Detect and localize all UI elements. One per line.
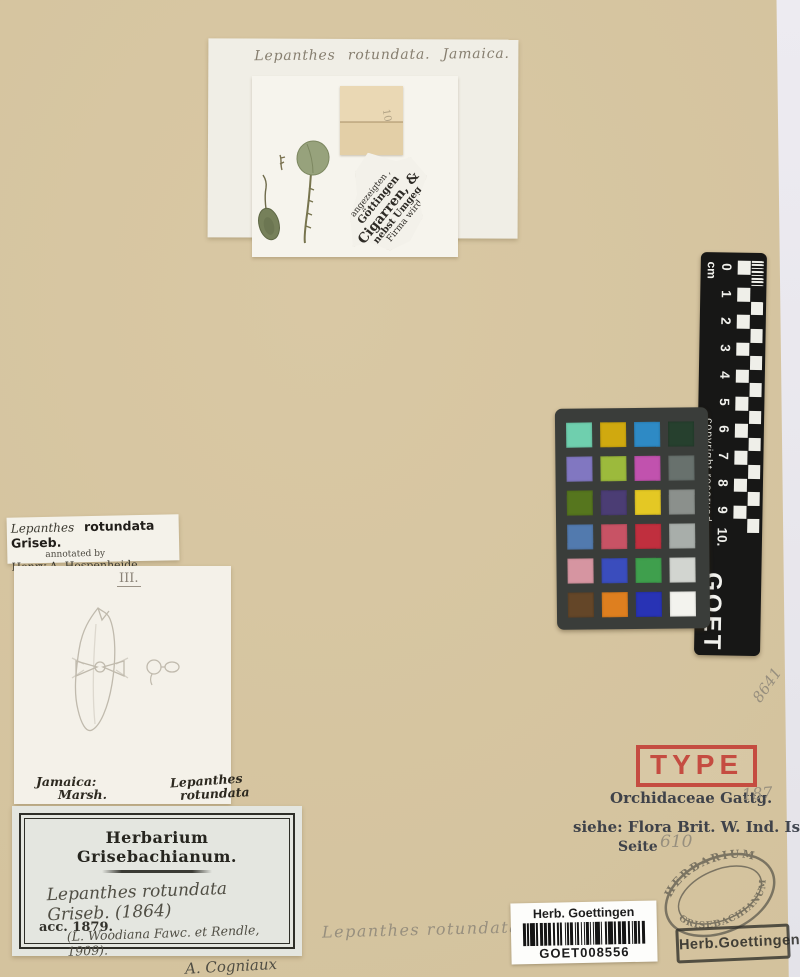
barcode-bar: [523, 923, 526, 946]
barcode-bar: [614, 921, 617, 944]
barcode-bar: [622, 921, 627, 944]
reference-pencil-page: 610: [660, 832, 692, 852]
scale-block: [737, 315, 750, 329]
seed-packet: 10: [340, 86, 403, 155]
color-patch: [669, 557, 695, 582]
barcode-bar: [627, 921, 630, 944]
barcode-bar: [530, 923, 535, 946]
herbarium-label-signature: A. Cogniaux: [185, 954, 290, 977]
scale-block: [750, 329, 763, 343]
handwritten-determination: Lepanthes rotundata. Jamaica.: [254, 46, 504, 64]
color-patch: [601, 558, 627, 583]
herbarium-label-title: Herbarium Grisebachianum.: [25, 828, 289, 866]
color-patch: [635, 490, 661, 515]
barcode-bar: [604, 922, 607, 945]
scale-mm-stripe: [751, 281, 764, 283]
scale-block: [733, 505, 746, 519]
divider-ornament: [102, 870, 212, 873]
barcode-bar: [540, 923, 543, 946]
color-patch: [670, 591, 696, 616]
barcode-institution: Herb. Goettingen: [510, 904, 656, 921]
scale-mm-stripe: [751, 264, 764, 266]
color-patch: [567, 524, 593, 549]
barcode-label: Herb. Goettingen GOET008556: [510, 900, 657, 964]
scale-block: [735, 424, 748, 438]
scale-block: [747, 519, 760, 533]
ruler-tick: 2: [718, 310, 733, 332]
color-checker-grid: [566, 421, 710, 617]
scale-mm-stripe: [751, 285, 764, 287]
drawing-collector: Marsh.: [58, 787, 107, 802]
pencil-sketch: [14, 566, 231, 804]
ruler-tick: 10.: [714, 526, 729, 548]
color-checker-card: [555, 407, 710, 630]
ruler-tick: 4: [717, 364, 732, 386]
scale-block: [734, 478, 747, 492]
barcode-bar: [589, 922, 591, 945]
seed-packet-fold-line: [340, 121, 403, 123]
scale-block: [747, 492, 760, 506]
scale-block: [749, 410, 762, 424]
scale-block: [736, 342, 749, 356]
barcode-bar: [580, 922, 582, 945]
herbarium-sheet-scan: Lepanthes rotundata. Jamaica. 10 angezei…: [0, 0, 800, 977]
ruler-tick: 6: [716, 418, 731, 440]
scale-mm-stripe: [751, 261, 764, 263]
ruler-tick: 8: [715, 472, 730, 494]
barcode-bar: [544, 923, 548, 946]
barcode-bar: [595, 922, 600, 945]
scale-block: [737, 288, 750, 302]
color-patch: [668, 421, 694, 446]
seed-packet-flap: [340, 122, 403, 155]
barcode-bar: [560, 922, 563, 945]
scale-block: [749, 383, 762, 397]
barcode-bar: [570, 922, 573, 945]
ruler-tick: 7: [716, 445, 731, 467]
barcode-bar: [638, 921, 641, 944]
ruler-tick: 3: [718, 337, 733, 359]
barcode-bar: [556, 923, 559, 946]
barcode-bar: [618, 921, 621, 944]
reference-pencil-number: 187: [741, 783, 773, 804]
color-patch: [602, 592, 628, 617]
scale-block: [748, 438, 761, 452]
ruler-tick: 1: [719, 283, 734, 305]
color-patch: [601, 524, 627, 549]
ruler-tick: 5: [717, 391, 732, 413]
color-patch: [634, 456, 660, 481]
scale-block: [748, 465, 761, 479]
scale-block: [738, 261, 751, 275]
type-stamp: TYPE: [636, 745, 757, 787]
herbarium-grisebachianum-label: Herbarium Grisebachianum. Lepanthes rotu…: [12, 806, 302, 956]
barcode-bar: [577, 922, 580, 945]
barcode-number: GOET008556: [511, 943, 657, 961]
color-patch: [669, 489, 695, 514]
barcode-bar: [536, 923, 539, 946]
scale-block: [734, 451, 747, 465]
color-patch: [634, 422, 660, 447]
scale-mm-stripe: [751, 271, 764, 273]
ruler-scale: [733, 253, 764, 553]
barcode: [519, 921, 649, 947]
pencil-sheet-number: 8641: [749, 664, 786, 706]
color-patch: [566, 456, 592, 481]
barcode-bar: [553, 923, 556, 946]
color-patch: [567, 490, 593, 515]
annotation-genus: Lepanthes: [11, 520, 75, 535]
herb-goettingen-box-stamp: Herb.Goettingen: [675, 924, 790, 964]
scale-block: [736, 369, 749, 383]
barcode-bar: [548, 923, 551, 946]
color-patch: [567, 558, 593, 583]
color-patch: [668, 455, 694, 480]
ruler-signature-mark: [720, 588, 757, 653]
color-patch: [636, 592, 662, 617]
label-outer-border: Herbarium Grisebachianum. Lepanthes rotu…: [19, 813, 295, 949]
barcode-bar: [586, 922, 589, 945]
drawing-card: III. Jamaica: Marsh. Lepanthes rotundata: [14, 566, 231, 804]
scale-mm-stripe: [751, 268, 764, 270]
barcode-bar: [601, 922, 603, 945]
pencil-determination: Lepanthes rotundata: [322, 917, 521, 941]
barcode-bar: [634, 921, 637, 944]
scale-mm-stripe: [751, 278, 764, 280]
scale-block: [735, 397, 748, 411]
color-patch: [635, 524, 661, 549]
color-patch: [635, 558, 661, 583]
barcode-bar: [608, 921, 613, 944]
scale-mm-stripe: [751, 274, 764, 276]
color-patch: [669, 523, 695, 548]
ruler-tick: 0: [719, 256, 734, 278]
ruler-tick: 9: [715, 499, 730, 521]
color-patch: [566, 422, 592, 447]
barcode-bar: [642, 921, 645, 944]
color-patch: [601, 490, 627, 515]
color-patch: [568, 592, 594, 617]
herbarium-label-name: Lepanthes rotundata Griseb. (1864): [46, 877, 289, 925]
annotation-label: Lepanthes rotundata Griseb. annotated by…: [7, 514, 180, 564]
barcode-bar: [526, 923, 529, 946]
scale-block: [749, 356, 762, 370]
scale-block: [750, 302, 763, 316]
color-patch: [600, 422, 626, 447]
color-patch: [600, 456, 626, 481]
packet-pencil-note: 10: [380, 108, 393, 122]
drawing-name-line2: rotundata: [180, 784, 250, 803]
barcode-bar: [567, 922, 570, 945]
reference-stamp-page-label: Seite: [618, 839, 658, 855]
label-inner-border: Herbarium Grisebachianum. Lepanthes rotu…: [24, 818, 290, 944]
herbarium-label-accession: acc. 1879.: [39, 920, 113, 935]
